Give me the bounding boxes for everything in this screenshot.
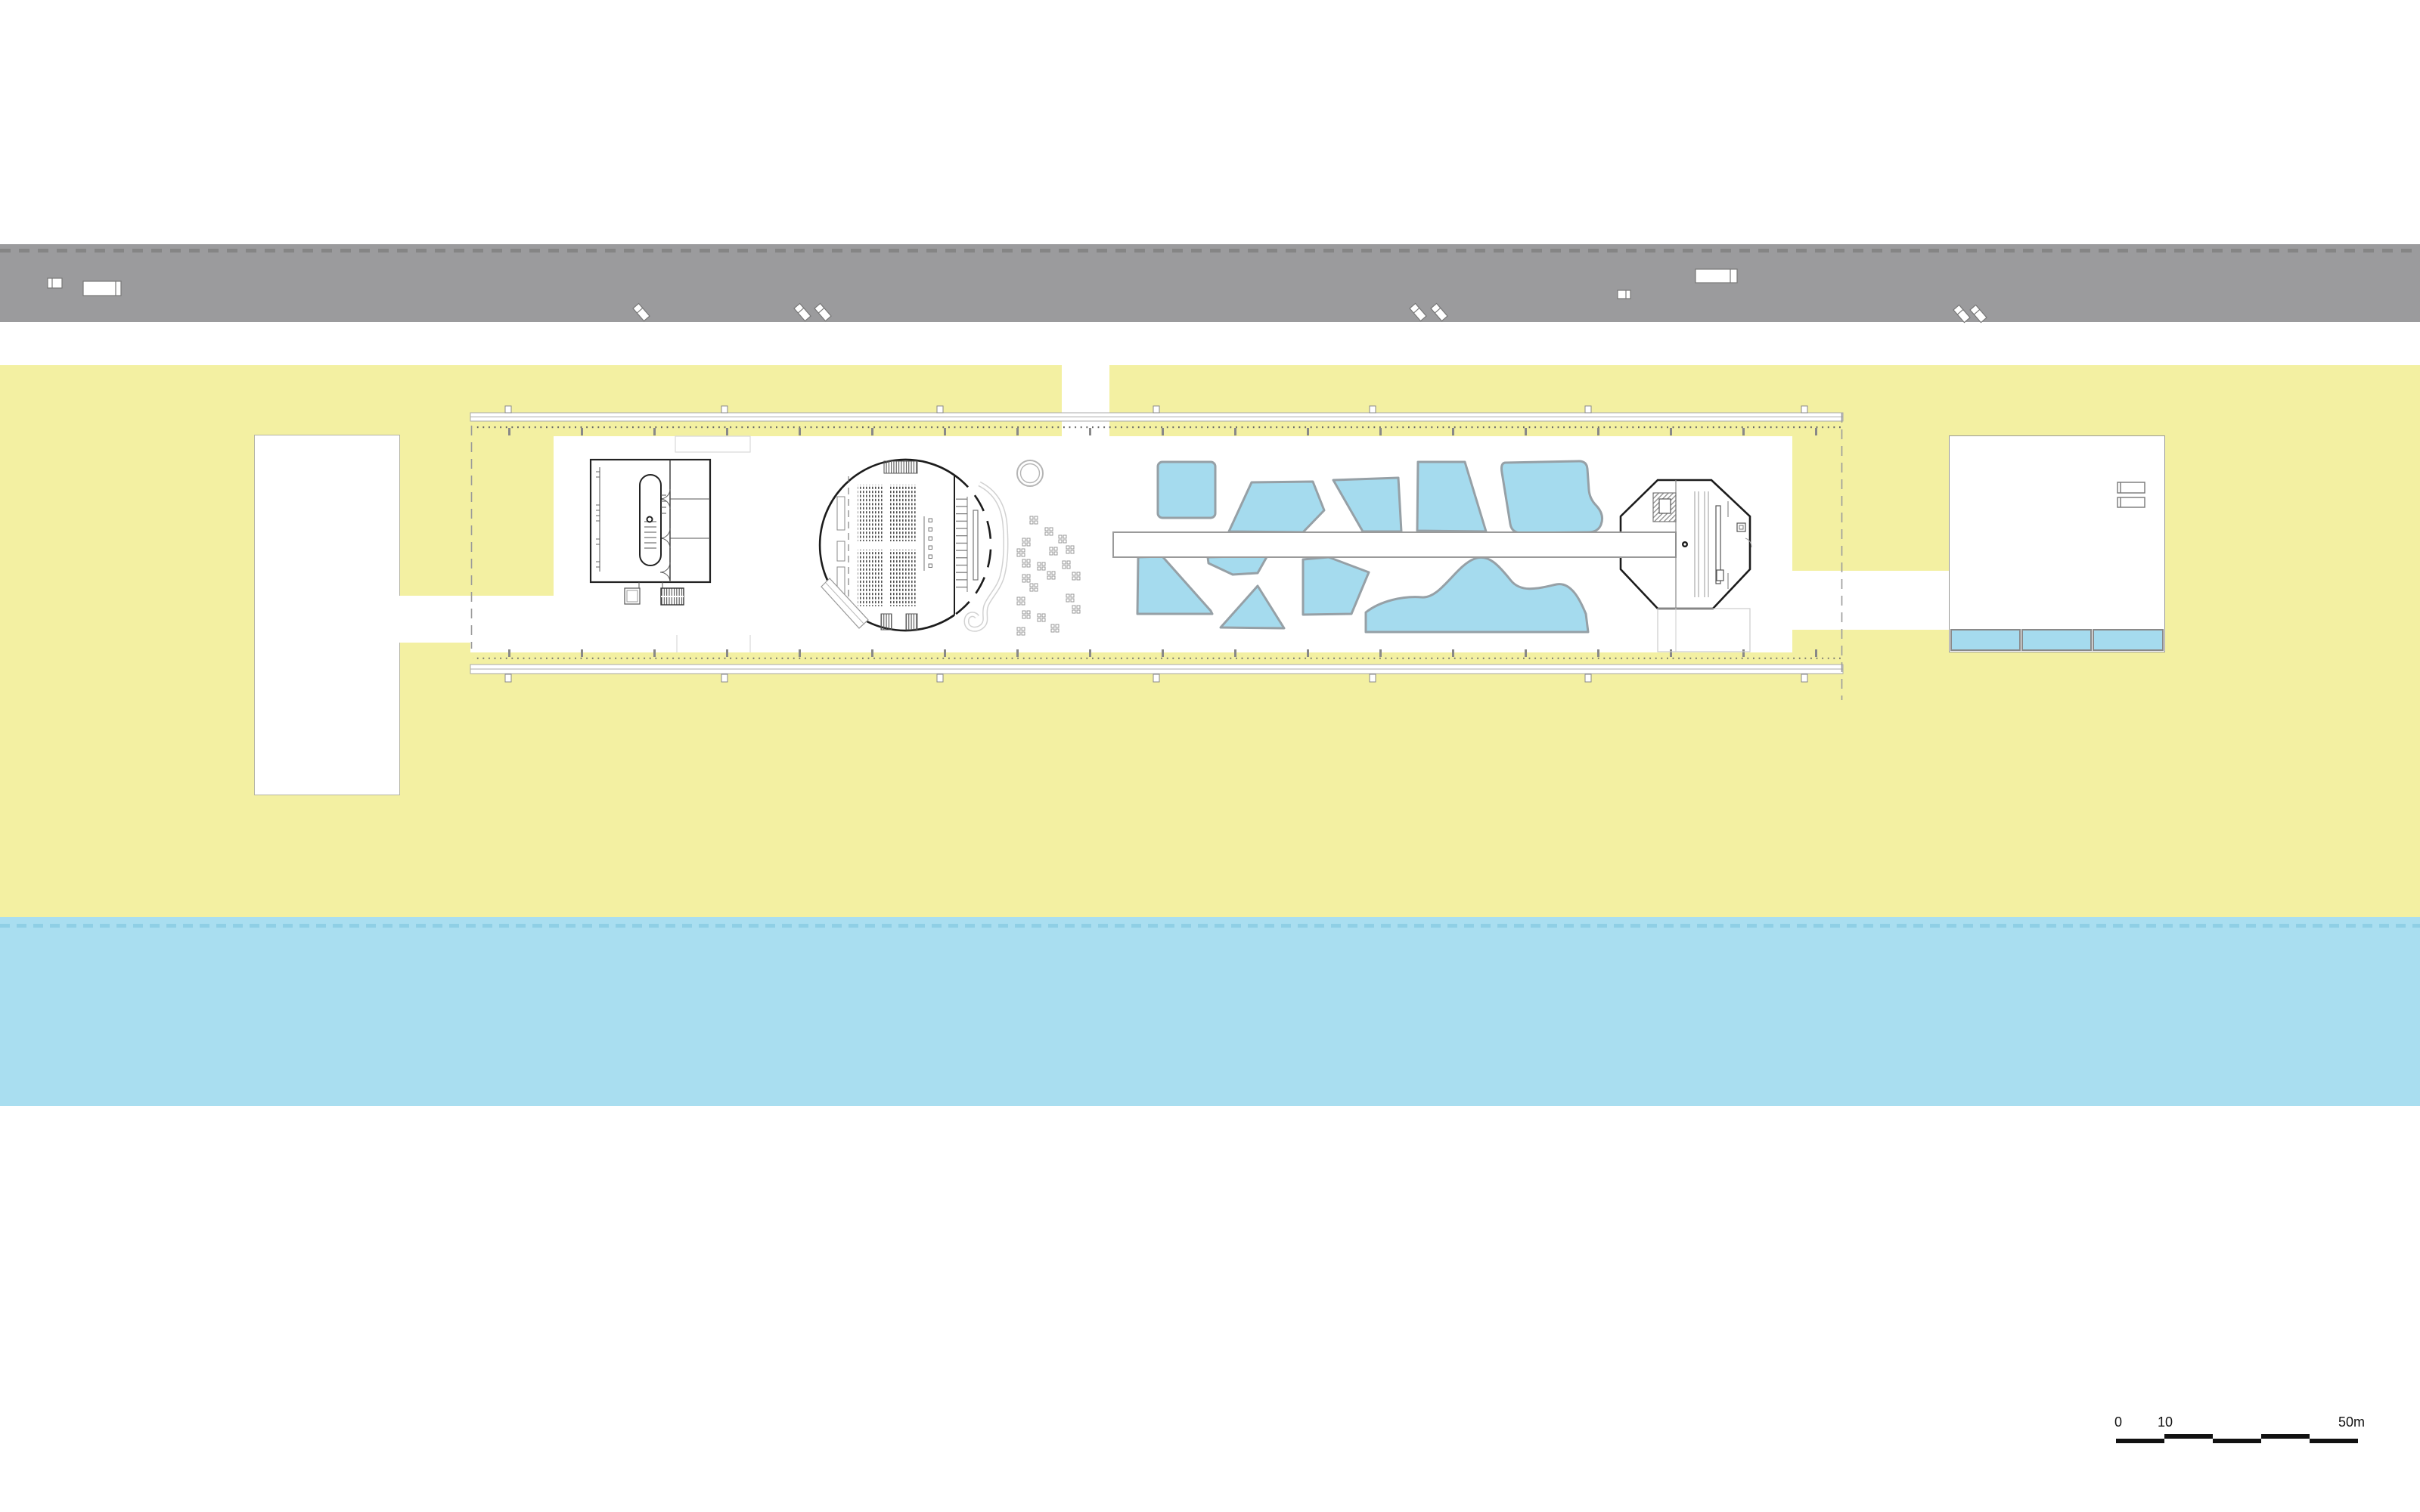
pool	[1366, 557, 1588, 632]
pool	[1208, 556, 1267, 575]
scale-segment	[2261, 1434, 2310, 1439]
car	[1953, 305, 1970, 322]
site-plan: 0 10 50m	[0, 0, 2420, 1512]
top-tick-posts	[473, 428, 1841, 435]
car	[1970, 305, 1987, 322]
scale-label-50m: 50m	[2338, 1415, 2365, 1429]
column-icon	[647, 517, 653, 522]
service-block	[591, 460, 710, 605]
pier-post	[1737, 523, 1745, 531]
cafe-tables	[1017, 516, 1080, 635]
faint-roof-outline	[675, 436, 750, 452]
right-annex-interior	[1951, 482, 2163, 650]
car	[1618, 290, 1630, 299]
pool	[1417, 462, 1486, 531]
plan-linework	[0, 0, 2420, 1512]
car	[794, 303, 811, 321]
car	[814, 303, 831, 321]
scale-label-0: 0	[2114, 1415, 2122, 1429]
lap-pool	[1951, 630, 2163, 650]
bus	[1696, 269, 1737, 283]
car	[633, 303, 650, 321]
screen	[973, 510, 978, 580]
pool	[1303, 557, 1369, 615]
circular-auditorium	[820, 460, 991, 631]
jetty-walkway	[1113, 532, 1676, 557]
car	[1410, 303, 1426, 321]
scale-label-10: 10	[2158, 1415, 2173, 1429]
pool	[1158, 462, 1215, 518]
stage-steps	[956, 497, 967, 592]
bottom-tick-posts	[473, 649, 1841, 657]
bench	[2117, 482, 2145, 507]
entry-stair-bottom	[906, 614, 917, 630]
scale-segment	[2213, 1439, 2261, 1443]
pool	[1229, 482, 1324, 532]
entry-stair-top	[884, 461, 917, 473]
entry-stair-bottom	[881, 614, 892, 630]
bottom-dotted-line	[473, 657, 1843, 659]
scale-segment	[2310, 1439, 2358, 1443]
pool	[1221, 586, 1284, 628]
vehicles	[48, 269, 1987, 323]
wall-fixtures	[837, 497, 845, 599]
center-aisle	[884, 485, 890, 606]
bus	[83, 281, 121, 296]
scale-segment	[2116, 1439, 2164, 1443]
lower-terrace-outline	[1658, 609, 1750, 652]
pool	[1137, 556, 1212, 614]
scale-bar: 0 10 50m	[2114, 1415, 2364, 1449]
meander-bench	[966, 484, 1006, 629]
car	[48, 278, 62, 288]
promenade	[966, 460, 1080, 635]
scale-segment	[2164, 1434, 2213, 1439]
car	[1431, 303, 1447, 321]
pool	[1502, 461, 1602, 533]
pool	[1333, 478, 1401, 531]
